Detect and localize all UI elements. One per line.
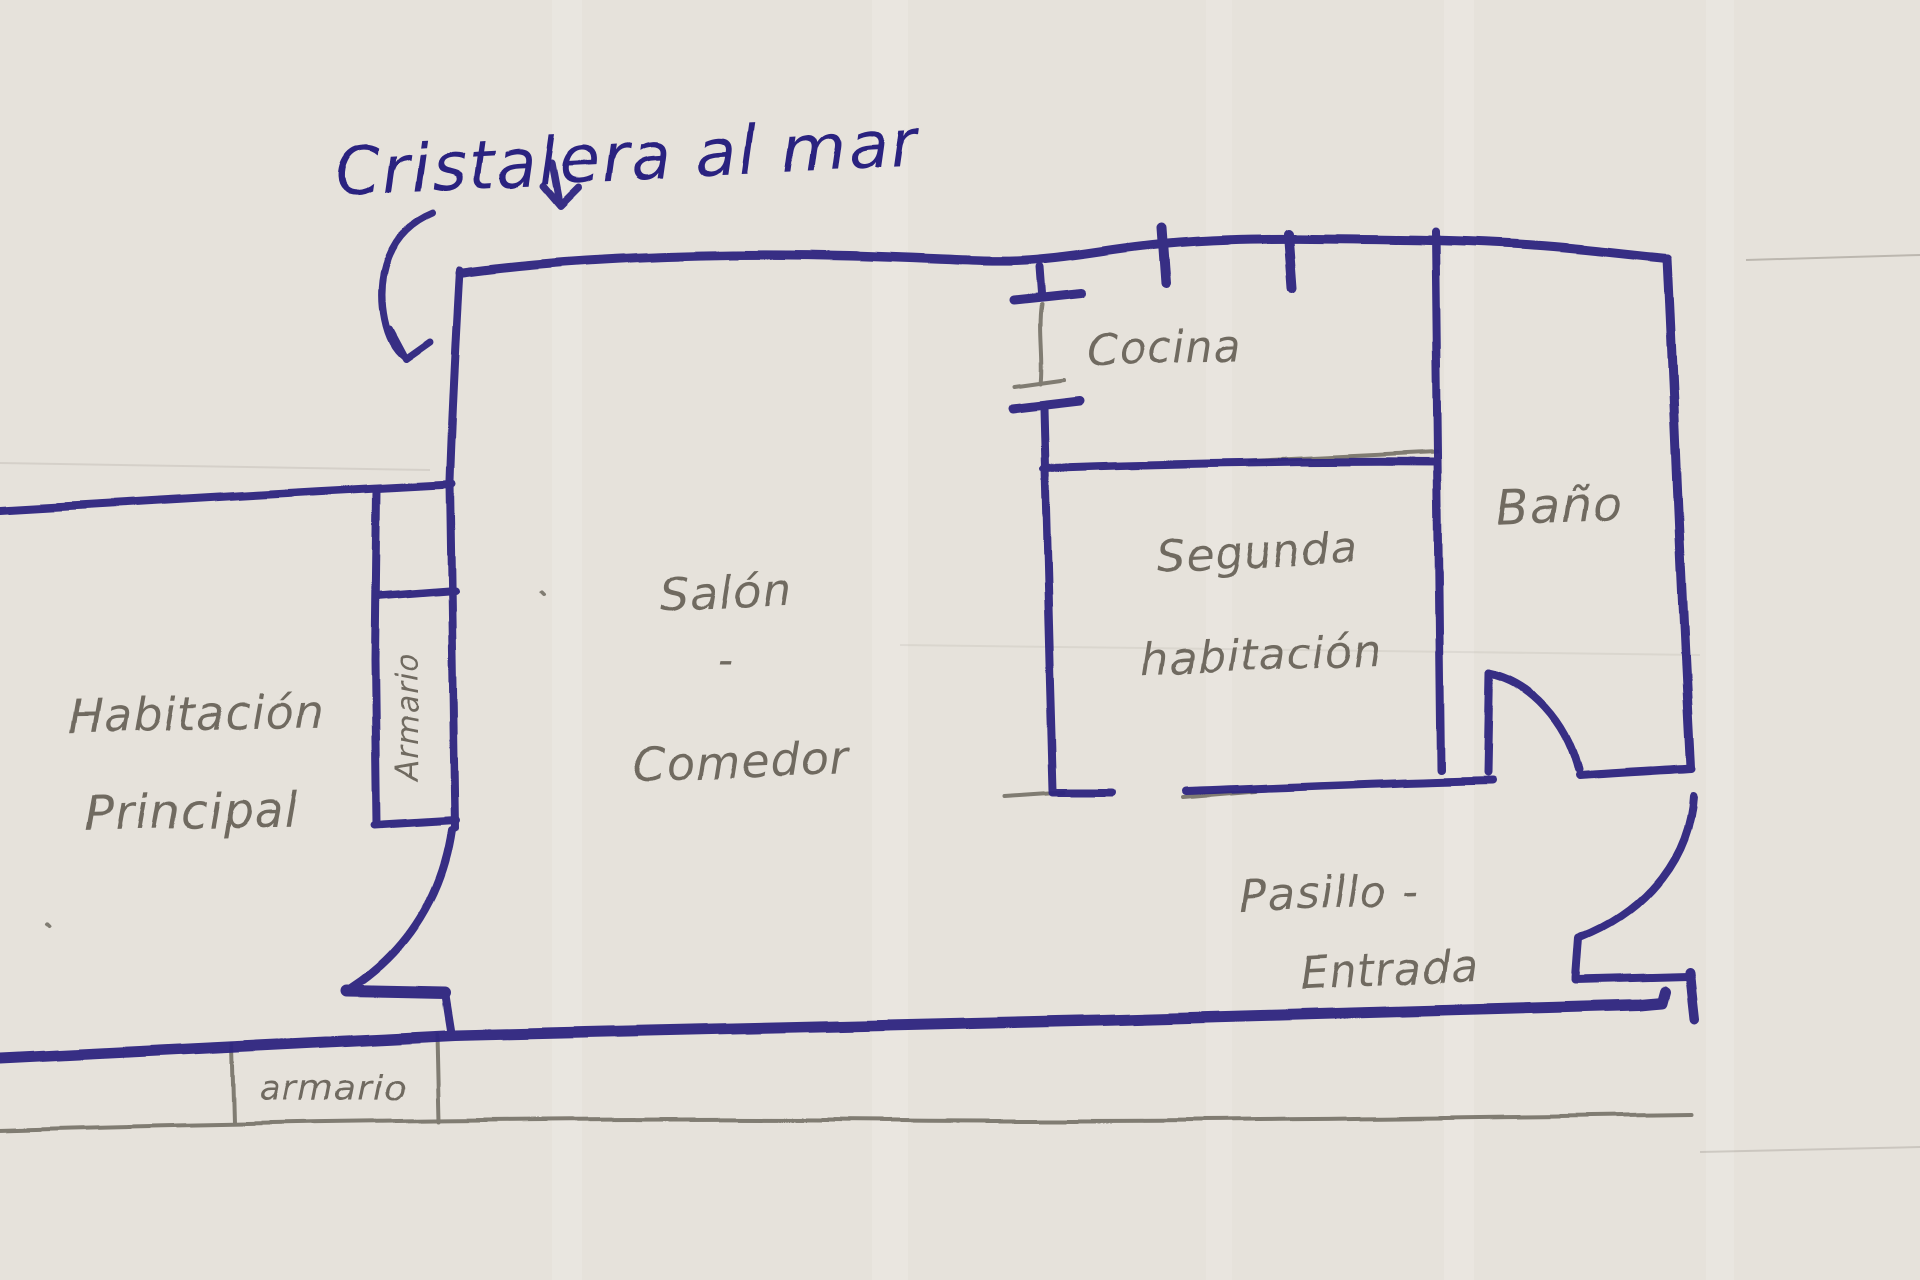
crease-vertical — [1706, 0, 1734, 1280]
entrance-step — [1577, 977, 1688, 980]
label-armario-pared: Armario — [390, 653, 425, 782]
pencil-labels: Habitación Principal Armario Salón - Com… — [68, 320, 1623, 1109]
crease-vertical — [1444, 0, 1474, 1280]
armario-box-right — [437, 1034, 439, 1122]
door-jamb-vertical — [445, 992, 452, 1036]
armario-box-left — [232, 1043, 234, 1124]
label-entrada: Entrada — [1298, 940, 1480, 1000]
title-cristalera: Cristalera al mar — [333, 104, 923, 212]
label-salon: Salón — [659, 563, 793, 622]
wall-bano-bottom-right — [1580, 769, 1692, 776]
wall-habitacion-top — [0, 484, 452, 510]
floor-plan-sketch: Cristalera al mar Habitación Principal A… — [0, 0, 1920, 1280]
window-tick — [1288, 234, 1292, 288]
entrance-stub — [1690, 973, 1695, 1018]
wall-bottom — [0, 992, 1665, 1058]
opening-stub — [1039, 267, 1041, 294]
opening-pencil-segment — [1040, 305, 1041, 383]
label-segunda-habitacion: habitación — [1140, 626, 1382, 685]
wall-bano-left — [1435, 232, 1441, 770]
window-tick — [1162, 228, 1166, 284]
label-pasillo: Pasillo - — [1239, 865, 1420, 922]
label-comedor: Comedor — [632, 731, 852, 793]
entrance-jamb — [1577, 938, 1580, 978]
door-arc-bano — [1489, 673, 1579, 770]
label-habitacion-principal-2: Principal — [84, 782, 299, 842]
armario-strip-left — [375, 490, 377, 824]
crease-vertical — [872, 0, 908, 1280]
baseboard-pencil-line — [0, 1114, 1690, 1130]
crease-line — [1746, 255, 1920, 260]
opening-tick-upper — [1014, 294, 1080, 301]
wall-salon-left-lower — [450, 483, 455, 828]
wall-cocina-bottom — [1044, 462, 1437, 468]
ink-walls — [0, 163, 1695, 1058]
pencil-speck — [47, 925, 49, 927]
wall-top — [460, 239, 1668, 273]
wall-right — [1668, 258, 1691, 768]
floor-plan-photo: Cristalera al mar Habitación Principal A… — [0, 0, 1920, 1280]
door-arc-entrance — [1582, 795, 1693, 937]
label-bano: Baño — [1495, 476, 1623, 536]
wall-salon-left-upper — [450, 270, 460, 481]
label-cocina: Cocina — [1086, 320, 1243, 376]
door-jamb-step — [347, 991, 445, 993]
curved-arrow-head — [390, 328, 430, 358]
armario-strip-divider — [376, 590, 455, 596]
pencil-speck — [542, 592, 544, 594]
door-leaf-bano — [1487, 673, 1489, 772]
label-habitacion-principal-1: Habitación — [68, 685, 325, 743]
drawing: Cristalera al mar Habitación Principal A… — [0, 104, 1695, 1130]
label-armario-inferior: armario — [259, 1068, 407, 1109]
crease-line — [0, 463, 430, 470]
door-arc-habitacion — [352, 830, 452, 988]
label-segunda: Segunda — [1156, 522, 1359, 583]
label-salon-dash: - — [718, 636, 734, 685]
armario-strip-bottom — [375, 820, 456, 825]
